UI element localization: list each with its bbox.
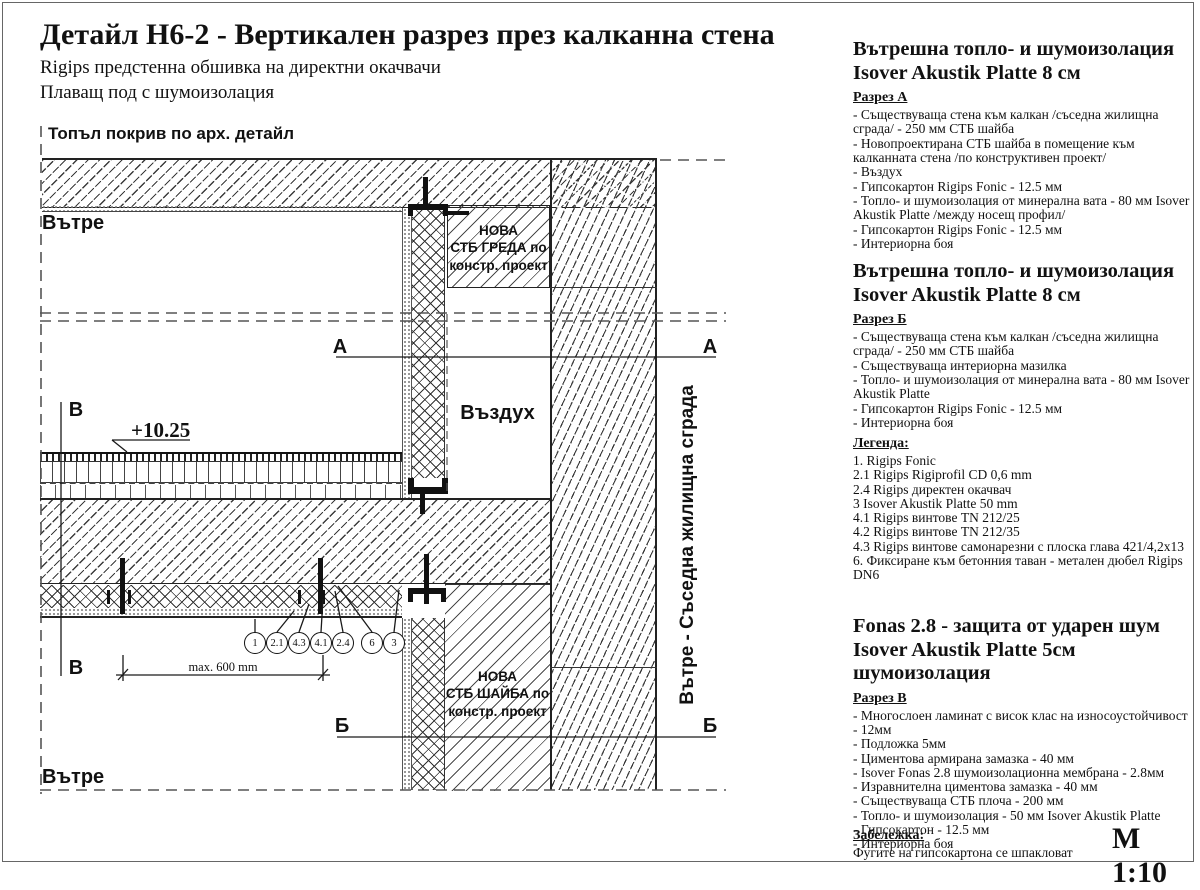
neighbor-building-label: Вътре - Съседна жилищна сграда [677,380,703,710]
direct-hanger-3 [424,554,429,604]
ceiling-gypsum-strip [40,608,402,618]
level-mark-label: +10.25 [131,418,190,443]
new-beam-label-line2: СТБ ГРЕДА по [447,239,550,256]
air-gap-label: Въздух [445,402,550,425]
spec-a-items: - Съществуваща стена към калкан /съседна… [853,108,1193,251]
scale-label: М 1:10 [1112,822,1200,890]
page-subtitle-2: Плаващ под с шумоизолация [40,82,274,104]
ceiling-hanger-top [423,177,428,207]
spec-item: - Изравнителна циментова замазка - 40 мм [853,780,1193,794]
spec-item: - Многослоен ламинат с висок клас на изн… [853,709,1193,738]
fonas-heading-2: Isover Akustik Platte 5см шумоизолация [853,639,1193,686]
legend-item: 4.1 Rigips винтове TN 212/25 [853,511,1193,525]
new-wall-label-line1: НОВА [445,668,550,685]
legend-item: 4.2 Rigips винтове TN 212/35 [853,525,1193,539]
spec-section-a: Вътрешна топло- и шумоизолация Isover Ak… [853,38,1193,251]
fonas-membrane-line [40,482,402,484]
spec-item: - Интериорна боя [853,416,1193,430]
callout-circle: 3 [383,632,405,654]
spec-item: - Съществуваща стена към калкан /съседна… [853,108,1193,137]
legend-items: 1. Rigips Fonic2.1 Rigips Rigiprofil CD … [853,454,1193,583]
callout-circle: 4.3 [288,632,310,654]
spec-a-heading-2: Isover Akustik Platte 8 см [853,62,1193,86]
cd-profile-top-bracket [408,204,448,216]
roof-underlay-strip [42,205,402,212]
dimension-label: max. 600 mm [158,660,288,675]
existing-wall-hatch [550,160,657,790]
section-a-label-left: А [328,336,352,359]
spec-item: - Съществуваща интериорна мазилка [853,359,1193,373]
screw-mark-4 [322,590,325,604]
screed-layer-lower [40,485,402,498]
new-wall-label-line2: СТБ ШАЙБА по [445,685,550,702]
callout-circle: 1 [244,632,266,654]
spec-item: - Подложка 5мм [853,737,1193,751]
legend-section: Легенда: 1. Rigips Fonic2.1 Rigips Rigip… [853,436,1193,583]
screw-mark-1 [107,590,110,604]
drawing-sheet: { "page": { "title": "Детайл Н6-2 - Верт… [0,0,1200,875]
new-wall-label: НОВА СТБ ШАЙБА по констр. проект [445,668,550,720]
section-b-label-right: Б [698,715,722,738]
callout-circle: 2.4 [332,632,354,654]
spec-item: - Гипсокартон Rigips Fonic - 12.5 мм [853,402,1193,416]
spec-item: - Новопроектирана СТБ шайба в помещение … [853,137,1193,166]
fonas-cut-label: Разрез В [853,691,1193,707]
spec-item: - Гипсокартон Rigips Fonic - 12.5 мм [853,223,1193,237]
laminate-layer [40,452,402,462]
spec-b-cut-label: Разрез Б [853,312,1193,328]
screw-mark-2 [128,590,131,604]
legend-item: 2.1 Rigips Rigiprofil CD 0,6 mm [853,468,1193,482]
page-title: Детайл Н6-2 - Вертикален разрез през кал… [40,18,775,52]
legend-item: 3 Isover Akustik Platte 50 mm [853,497,1193,511]
spec-b-items: - Съществуваща стена към калкан /съседна… [853,330,1193,430]
lining-gypsum-upper [402,208,412,498]
new-wall-label-line3: констр. проект [445,703,550,720]
spec-item: - Топло- и шумоизолация - 50 мм Isover A… [853,809,1193,823]
page-subtitle-1: Rigips предстенна обшивка на директни ок… [40,57,441,79]
legend-item: 4.3 Rigips винтове самонарезни с плоска … [853,540,1193,554]
legend-item: 1. Rigips Fonic [853,454,1193,468]
screed-layer-upper [40,462,402,483]
wall-joint-line-upper [550,287,657,288]
legend-title: Легенда: [853,436,1193,452]
spec-item: - Въздух [853,165,1193,179]
spec-item: - Съществуваща стена към калкан /съседна… [853,330,1193,359]
ceiling-insulation-band [40,585,402,608]
spec-item: - Циментова армирана замазка - 40 мм [853,752,1193,766]
spec-b-heading-2: Isover Akustik Platte 8 см [853,284,1193,308]
section-v-label-bottom: В [64,657,88,680]
lining-insulation-upper [412,208,445,478]
screw-mark-3 [298,590,301,604]
spec-section-b: Вътрешна топло- и шумоизолация Isover Ak… [853,260,1193,430]
callout-circle: 2.1 [266,632,288,654]
section-v-label-top: В [64,399,88,422]
spec-a-heading-1: Вътрешна топло- и шумоизолация [853,38,1193,62]
spec-item: - Топло- и шумоизолация от минерална ват… [853,373,1193,402]
inside-label-bottom: Вътре [42,766,104,789]
spec-item: - Съществуваща СТБ плоча - 200 мм [853,794,1193,808]
fonas-heading-1: Fonas 2.8 - защита от ударен шум [853,615,1193,639]
spec-item: - Гипсокартон Rigips Fonic - 12.5 мм [853,180,1193,194]
inside-label-top: Вътре [42,212,104,235]
hanger-stub-mid [420,494,425,514]
spec-item: - Интериорна боя [853,237,1193,251]
new-beam-label: НОВА СТБ ГРЕДА по констр. проект [447,222,550,274]
new-beam-label-line3: констр. проект [447,257,550,274]
anchor-screw-beam [447,211,469,215]
spec-section-v: Fonas 2.8 - защита от ударен шум Isover … [853,615,1193,852]
lining-insulation-lower [412,618,445,790]
section-b-label-left: Б [330,715,354,738]
spec-a-cut-label: Разрез А [853,90,1193,106]
direct-hanger-1 [120,558,125,614]
new-beam-label-line1: НОВА [447,222,550,239]
direct-hanger-2 [318,558,323,614]
wall-joint-line-lower [550,667,657,668]
floor-slab-hatch [40,498,550,584]
callout-circle: 6 [361,632,383,654]
cd-profile-bottom-bracket [408,478,448,494]
legend-item: 6. Фиксиране към бетонния таван - метале… [853,554,1193,583]
section-a-label-right: А [698,336,722,359]
spec-b-heading-1: Вътрешна топло- и шумоизолация [853,260,1193,284]
spec-item: - Isover Fonas 2.8 шумоизолационна мембр… [853,766,1193,780]
callout-circle: 4.1 [310,632,332,654]
spec-item: - Топло- и шумоизолация от минерална ват… [853,194,1193,223]
legend-item: 2.4 Rigips директен окачвач [853,483,1193,497]
roof-label: Топъл покрив по арх. детайл [48,124,294,144]
